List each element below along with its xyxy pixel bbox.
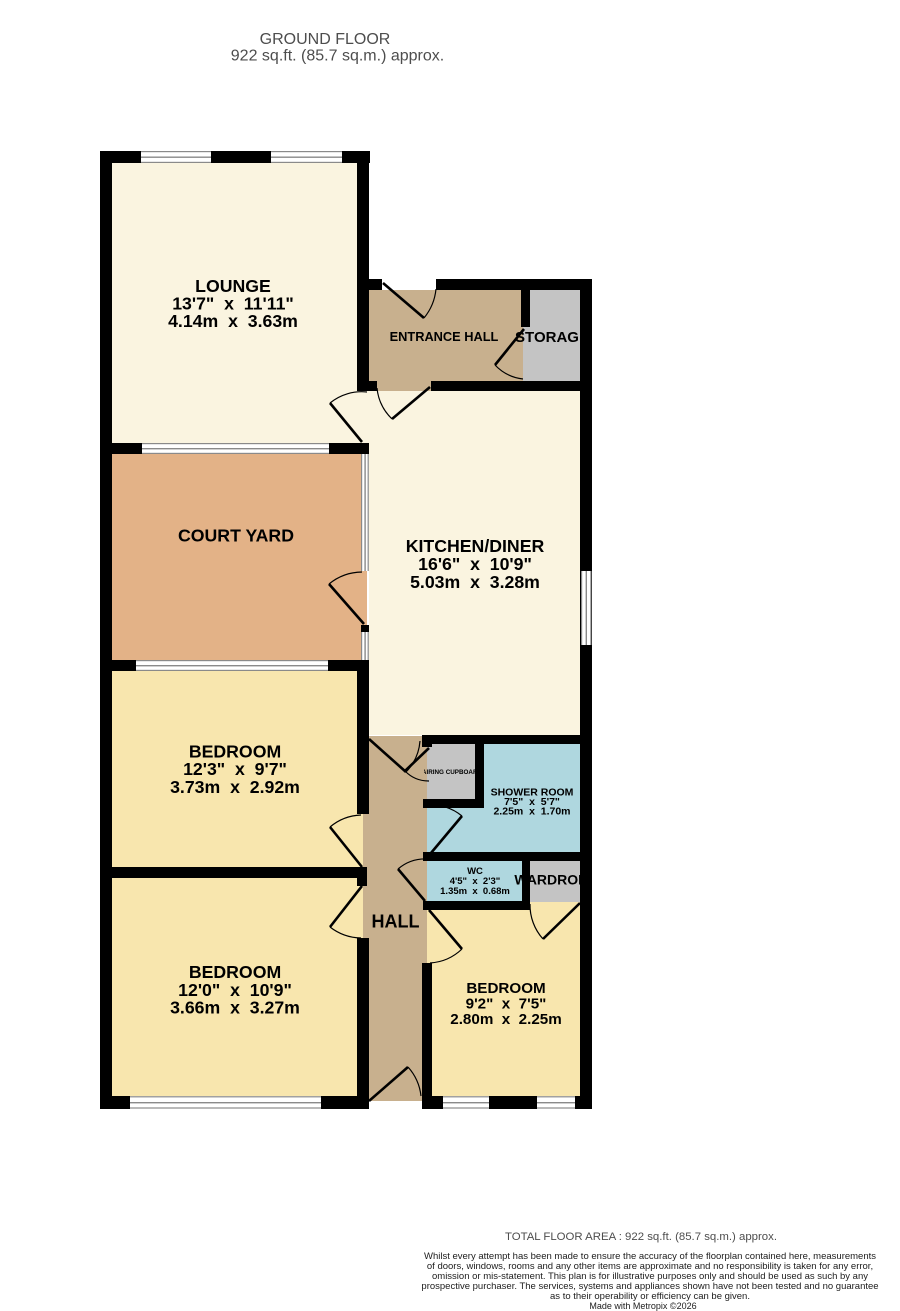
svg-text:COURT YARD: COURT YARD — [178, 526, 294, 546]
svg-text:2.80m x 2.25m: 2.80m x 2.25m — [450, 1011, 561, 1028]
svg-text:9'2" x 7'5": 9'2" x 7'5" — [466, 996, 547, 1013]
svg-text:3.73m x 2.92m: 3.73m x 2.92m — [170, 777, 300, 797]
svg-text:KITCHEN/DINER: KITCHEN/DINER — [406, 536, 545, 556]
svg-text:HALL: HALL — [372, 912, 420, 932]
svg-text:5.03m x 3.28m: 5.03m x 3.28m — [410, 572, 540, 592]
svg-text:2.25m x 1.70m: 2.25m x 1.70m — [493, 806, 570, 818]
svg-text:Made with Metropix ©2026: Made with Metropix ©2026 — [589, 1301, 696, 1311]
svg-text:4.14m x 3.63m: 4.14m x 3.63m — [168, 311, 298, 331]
svg-text:1.35m x 0.68m: 1.35m x 0.68m — [440, 886, 510, 897]
svg-text:3.66m x 3.27m: 3.66m x 3.27m — [170, 998, 300, 1018]
svg-text:922 sq.ft. (85.7 sq.m.) approx: 922 sq.ft. (85.7 sq.m.) approx. — [231, 47, 444, 64]
svg-text:GROUND FLOOR: GROUND FLOOR — [260, 31, 391, 48]
svg-text:BEDROOM: BEDROOM — [466, 980, 545, 997]
svg-text:BEDROOM: BEDROOM — [189, 962, 281, 982]
svg-text:12'3" x 9'7": 12'3" x 9'7" — [183, 759, 287, 779]
svg-text:16'6" x 10'9": 16'6" x 10'9" — [418, 554, 532, 574]
svg-text:AIRING CUPBOARD: AIRING CUPBOARD — [422, 769, 483, 776]
svg-text:STORAGE: STORAGE — [515, 329, 589, 346]
svg-text:TOTAL FLOOR AREA : 922 sq.ft.: TOTAL FLOOR AREA : 922 sq.ft. (85.7 sq.m… — [505, 1231, 777, 1243]
svg-text:ENTRANCE HALL: ENTRANCE HALL — [390, 329, 499, 344]
